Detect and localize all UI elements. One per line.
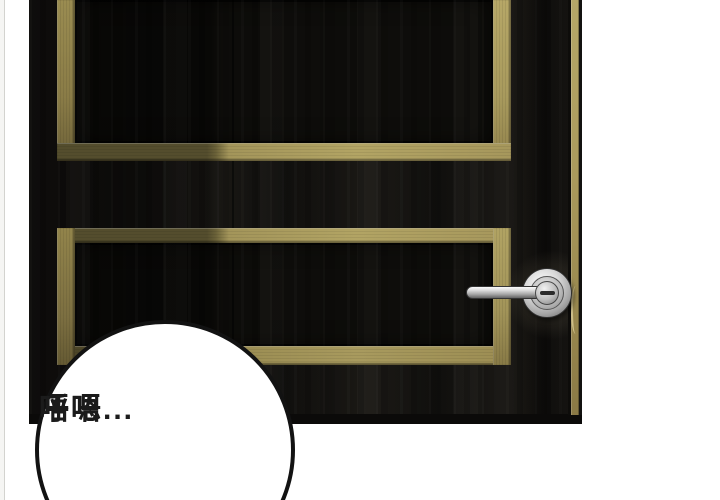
door-edge-gold-strip (571, 0, 579, 415)
door-right-shadow (519, 0, 568, 424)
door-edge-bottom (568, 415, 582, 424)
door-trim-upper-right-bar (493, 0, 511, 161)
speech-line-2: 唔嗯... (39, 388, 134, 432)
door-trim-lower-right-bar (493, 228, 511, 365)
door-trim-upper-bottom-bar (57, 143, 511, 161)
door-edge-trim (568, 0, 582, 424)
door-trim-lower-left-bar (57, 228, 75, 365)
door-panel-seam (232, 0, 234, 365)
door-edge-dark-line (579, 0, 582, 424)
wall-corner-line (4, 0, 5, 500)
door-trim-upper-left-bar (57, 0, 75, 161)
door-trim-lower-top-bar (57, 228, 511, 243)
door-panel-upper (75, 0, 493, 143)
comic-panel: 呼唔 唔嗯... (0, 0, 720, 500)
